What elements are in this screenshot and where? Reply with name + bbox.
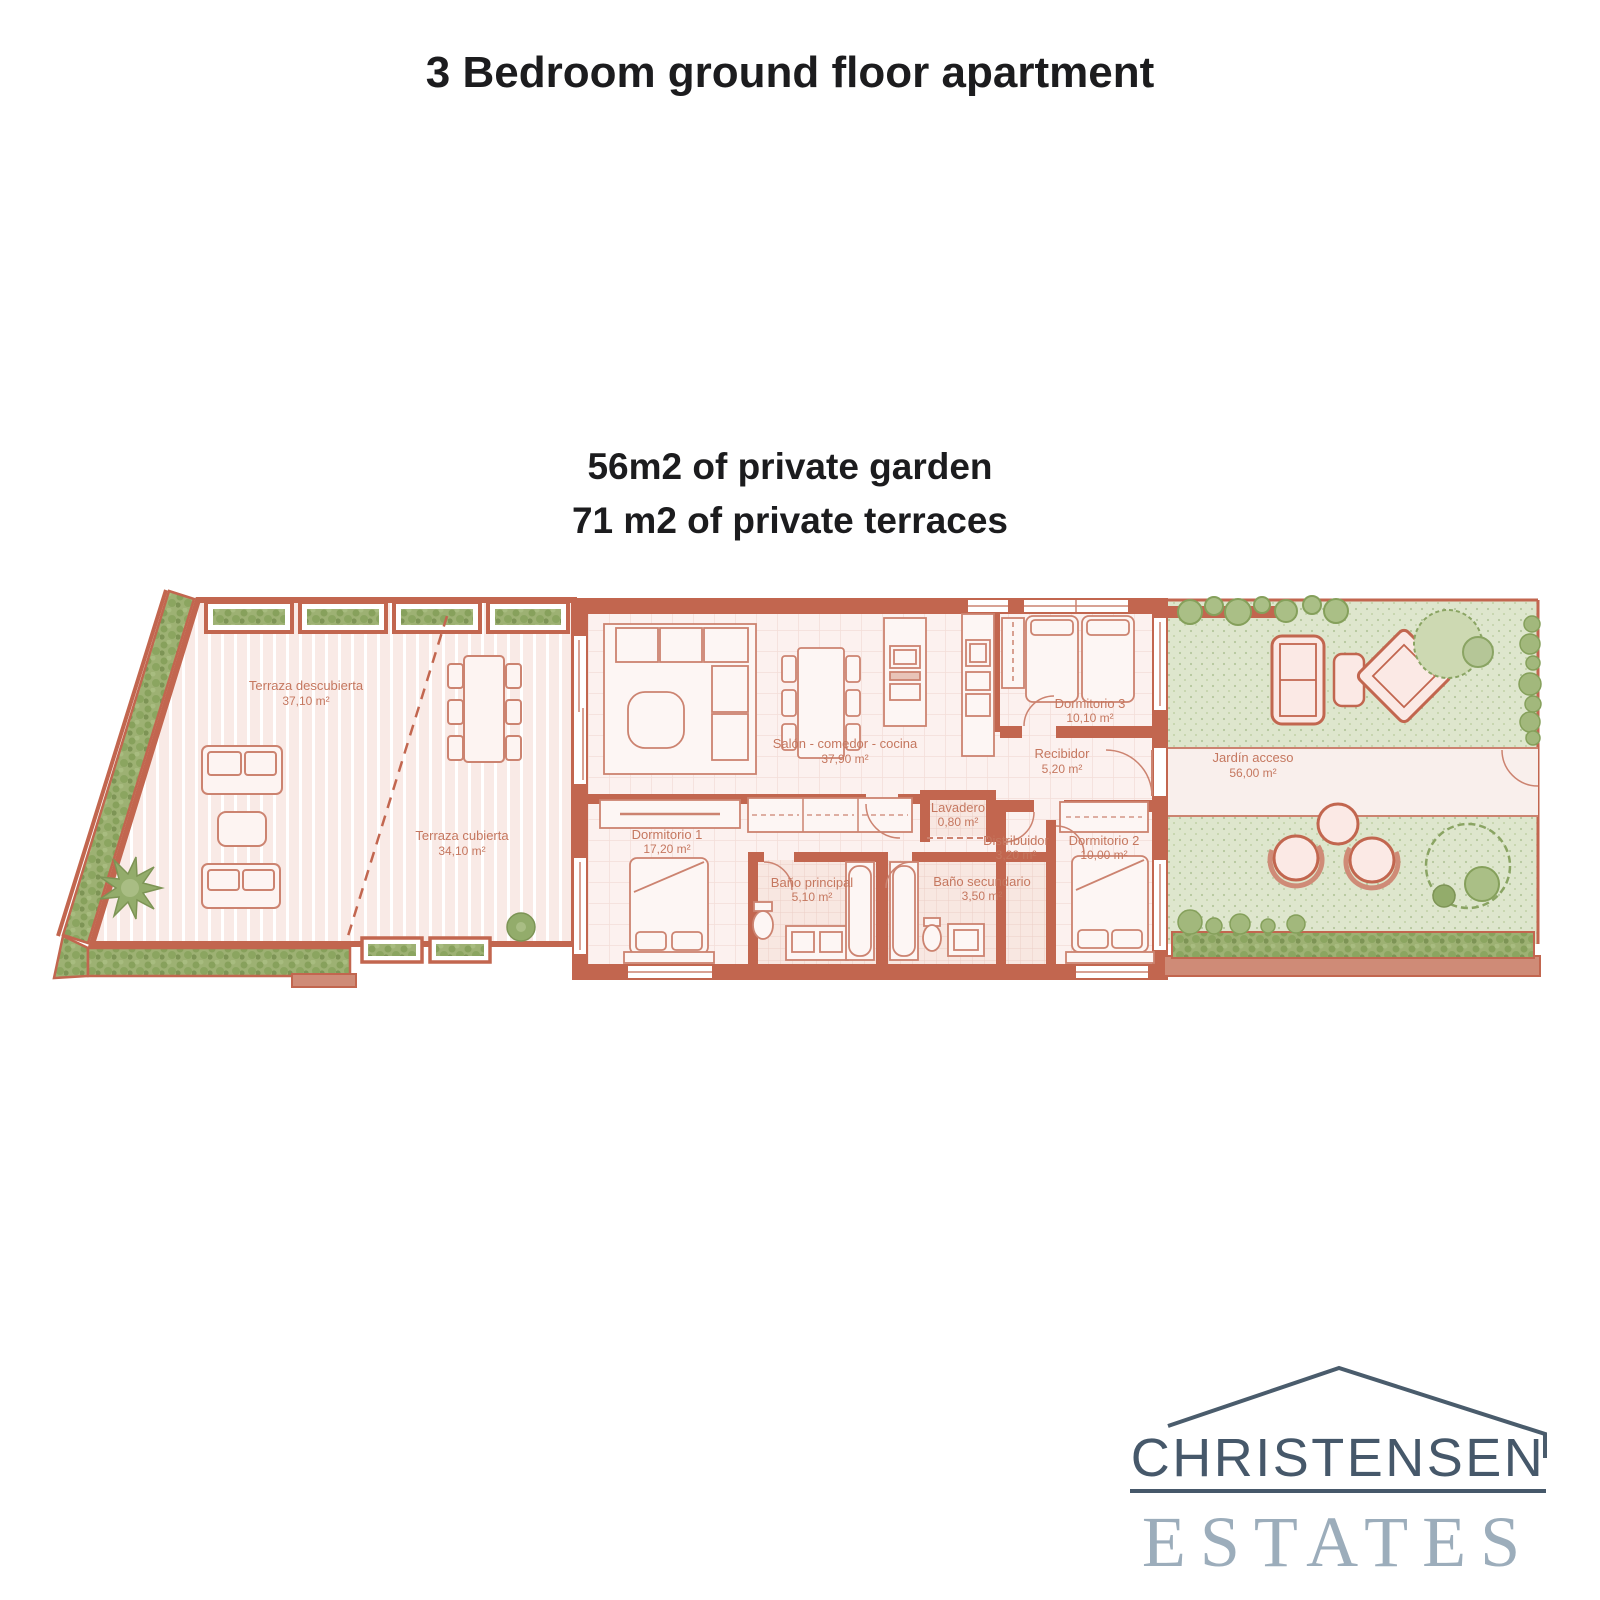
room-label-dormitorio-2: Dormitorio 2 (1069, 833, 1140, 848)
room-area-jardin: 56,00 m² (1229, 766, 1276, 780)
terrace-section (54, 590, 574, 987)
room-area-salon: 37,90 m² (821, 752, 868, 766)
apartment-section (572, 598, 1168, 980)
room-area-distribuidor: 3,20 m² (996, 848, 1037, 862)
terrace-planters-top (206, 602, 568, 632)
wardrobe-dormitorio-2 (1060, 802, 1148, 832)
kitchen-counter (962, 614, 994, 756)
room-label-bano-principal: Baño principal (771, 875, 853, 890)
room-area-terraza-descubierta: 37,10 m² (282, 694, 329, 708)
bed-dormitorio-2 (1066, 856, 1154, 963)
room-label-distribuidor: Distribuidor (983, 833, 1049, 848)
logo-division-name: ESTATES (1142, 1502, 1534, 1582)
room-label-lavadero: Lavadero (931, 800, 985, 815)
kitchen-island (884, 618, 926, 726)
room-label-terraza-cubierta: Terraza cubierta (415, 828, 509, 843)
room-label-salon: Salón - comedor - cocina (773, 736, 918, 751)
brand-logo: CHRISTENSEN ESTATES (1124, 1348, 1554, 1588)
room-label-dormitorio-1: Dormitorio 1 (632, 827, 703, 842)
room-label-bano-secundario: Baño secundario (933, 874, 1031, 889)
garden-section (1164, 596, 1541, 976)
room-area-bano-secundario: 3,50 m² (962, 889, 1003, 903)
page-canvas: 3 Bedroom ground floor apartment 56m2 of… (0, 0, 1600, 1600)
room-area-bano-principal: 5,10 m² (792, 890, 833, 904)
terrace-wall-step (292, 974, 356, 987)
logo-brand-name: CHRISTENSEN (1131, 1428, 1546, 1488)
terrace-plant-small (507, 913, 535, 941)
room-area-lavadero: 0,80 m² (938, 815, 979, 829)
room-area-dormitorio-1: 17,20 m² (643, 842, 690, 856)
wardrobe-dormitorio-3 (1002, 618, 1024, 688)
room-label-dormitorio-3: Dormitorio 3 (1055, 696, 1126, 711)
room-area-terraza-cubierta: 34,10 m² (438, 844, 485, 858)
bed-dormitorio-1 (624, 858, 714, 963)
room-area-dormitorio-3: 10,10 m² (1066, 711, 1113, 725)
terrace-hedge-bottom (88, 948, 350, 976)
room-label-jardin: Jardín acceso (1213, 750, 1294, 765)
room-area-dormitorio-2: 10,00 m² (1080, 848, 1127, 862)
terrace-dining-table (448, 656, 521, 762)
room-label-recibidor: Recibidor (1035, 746, 1091, 761)
room-area-recibidor: 5,20 m² (1042, 762, 1083, 776)
room-label-terraza-descubierta: Terraza descubierta (249, 678, 364, 693)
garden-sofa (1272, 636, 1324, 724)
garden-hedge-bottom (1172, 932, 1534, 958)
living-room-sofa (604, 624, 756, 774)
